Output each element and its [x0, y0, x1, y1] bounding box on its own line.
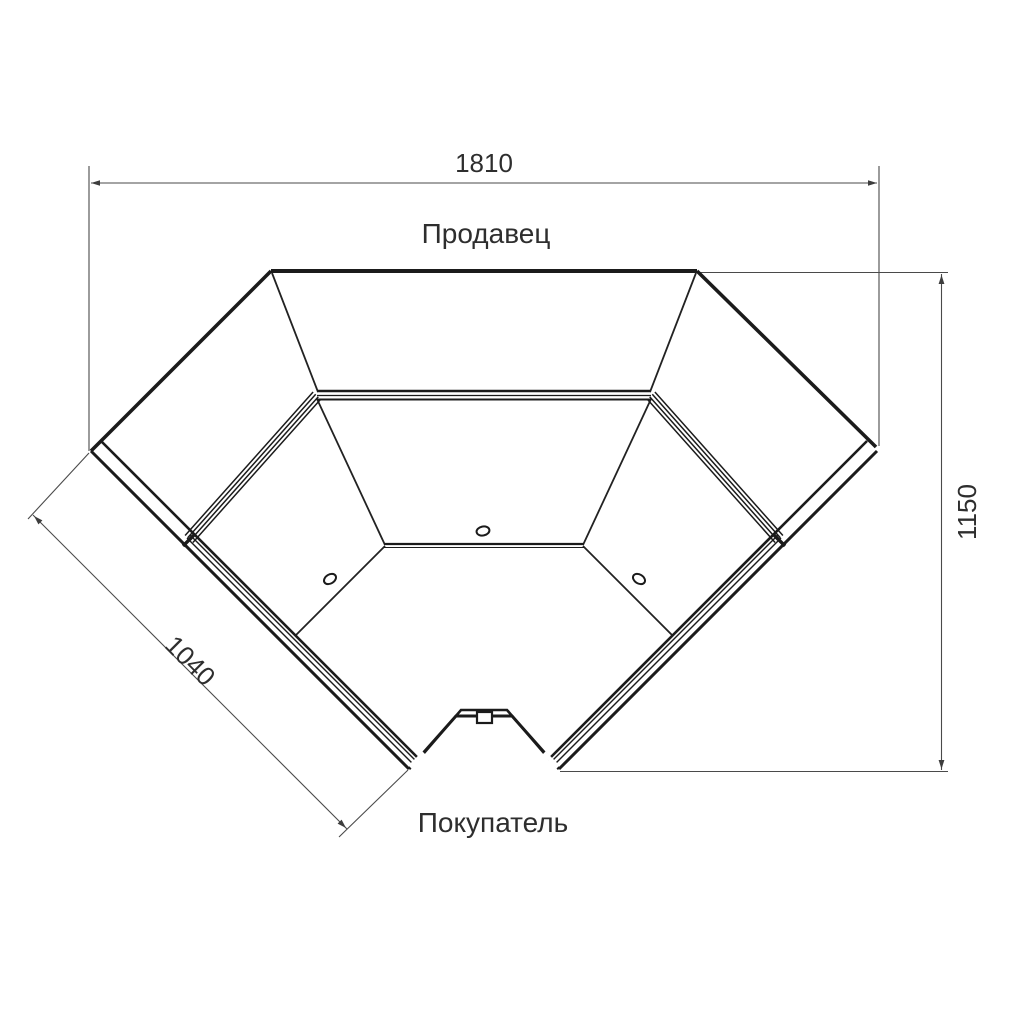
- front-left-glass-line2: [190, 535, 416, 761]
- deck-hole-right: [631, 572, 647, 587]
- dim-1040-extension-top: [28, 453, 89, 519]
- front-right-glass-line1: [555, 538, 781, 764]
- deck-front-edge: [384, 544, 584, 548]
- deck-holes: [322, 525, 647, 586]
- arrow-1150-top: [939, 275, 945, 284]
- side-right-line1: [655, 392, 783, 536]
- seam-back-right-corner: [650, 273, 696, 392]
- front-left-inner-edge: [101, 441, 419, 759]
- front-right-glass-line2: [552, 535, 778, 761]
- notch-separator-right: [544, 753, 558, 767]
- arrow-1810-left: [91, 180, 100, 186]
- buyer-label: Покупатель: [418, 807, 568, 838]
- counter-outer-edges: [91, 271, 876, 451]
- deck-hole-left: [322, 572, 338, 587]
- seam-back-left-corner: [272, 273, 318, 392]
- side-left-line1: [185, 392, 313, 536]
- notch-separator-left: [410, 753, 424, 767]
- counter-plan-drawing: 1810 Продавец 1150 1040 Покупатель: [0, 0, 1024, 1024]
- back-left-diagonal: [91, 271, 271, 451]
- side-right-line4: [647, 399, 775, 543]
- front-left-outer-edge: [91, 451, 409, 769]
- side-left-line4: [193, 399, 321, 543]
- back-right-diagonal: [697, 271, 876, 447]
- dim-label-1810: 1810: [455, 148, 513, 178]
- side-left-line3: [190, 397, 318, 541]
- glass-band-side-right: [647, 392, 783, 543]
- front-band-left: [91, 441, 419, 769]
- seam-deck-left: [317, 399, 385, 545]
- front-band-right: [549, 441, 877, 769]
- seam-deck-right: [583, 399, 651, 545]
- side-right-line2: [652, 394, 780, 538]
- glass-band-back: [317, 391, 651, 400]
- drawing-page: 1810 Продавец 1150 1040 Покупатель: [0, 0, 1024, 1024]
- inner-seam-lines: [272, 273, 696, 636]
- arrow-1810-right: [868, 180, 877, 186]
- dim-1040-extension-bottom: [339, 770, 408, 837]
- seam-front-right: [583, 546, 673, 636]
- notch-separators: [410, 753, 558, 767]
- side-left-line2: [188, 394, 316, 538]
- side-right-line3: [650, 397, 778, 541]
- dim-label-1150: 1150: [952, 484, 982, 540]
- front-left-glass-line1: [187, 538, 413, 764]
- notch-center-latch: [477, 712, 492, 723]
- glass-band-side-left: [185, 392, 321, 543]
- arrow-1150-bottom: [939, 760, 945, 769]
- front-right-inner-edge: [549, 441, 867, 759]
- front-right-outer-edge: [559, 451, 877, 769]
- deck-hole-center: [476, 525, 491, 537]
- dim-label-1040: 1040: [159, 630, 221, 692]
- seller-label: Продавец: [422, 218, 551, 249]
- dimension-lines: [28, 166, 948, 837]
- dimension-arrows: [34, 180, 944, 828]
- seam-front-left: [295, 546, 385, 636]
